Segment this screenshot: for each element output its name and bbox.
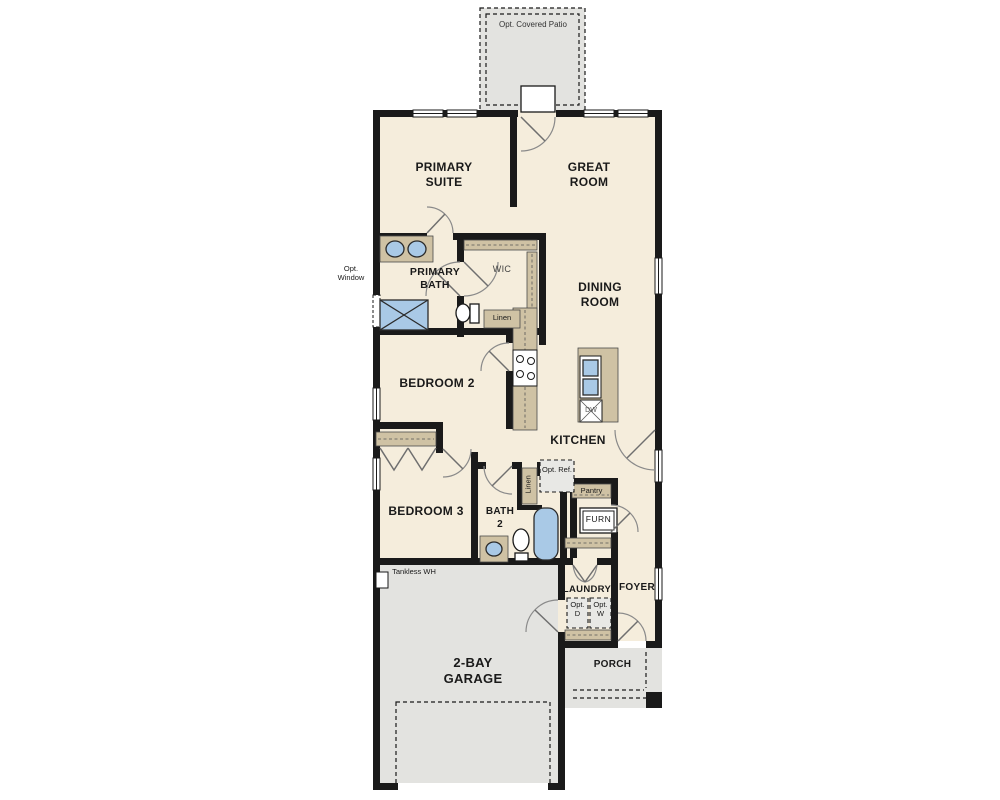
label-opt-window: Opt. Window [330, 265, 372, 282]
room-label-bedroom-3: BEDROOM 3 [381, 504, 471, 519]
wall-right [655, 110, 662, 648]
wall-left [373, 110, 380, 790]
wall-wic-dining [539, 233, 546, 345]
sink [408, 241, 426, 257]
toilet [456, 304, 470, 322]
window [618, 110, 648, 117]
garage-door-opening [398, 783, 548, 790]
wall-primary-great [510, 110, 517, 207]
room-label-laundry: LAUNDRY [560, 584, 614, 596]
room-label-bath-2: BATH 2 [482, 506, 518, 531]
room-label-foyer: FOYER [615, 582, 659, 595]
room-label-bedroom-2: BEDROOM 2 [392, 376, 482, 391]
window [655, 450, 662, 482]
label-linen-upper: Linen [484, 314, 520, 323]
wall-bedroom3-bath2 [471, 452, 478, 565]
room-label-patio: Opt. Covered Patio [487, 20, 579, 29]
bathtub [534, 508, 558, 560]
room-label-dining-room: DINING ROOM [565, 280, 635, 310]
window [373, 458, 380, 490]
window [447, 110, 477, 117]
label-opt-ref: Opt. Ref. [540, 466, 574, 475]
label-furnace: FURN [580, 515, 617, 525]
porch-column [646, 692, 662, 708]
room-label-garage: 2-BAY GARAGE [430, 655, 516, 688]
toilet-tank [470, 304, 479, 323]
room-label-great-room: GREAT ROOM [558, 160, 620, 190]
optional-window [373, 295, 380, 327]
label-opt-dryer: Opt. D [567, 601, 588, 618]
label-opt-washer: Opt. W [590, 601, 611, 618]
room-label-porch: PORCH [585, 659, 640, 672]
wall-garage-right [558, 632, 565, 790]
window [373, 388, 380, 420]
window [655, 258, 662, 294]
toilet [513, 529, 529, 551]
label-linen-lower: Linen [525, 469, 534, 499]
laundry-shelf [565, 630, 611, 640]
label-tankless-wh: Tankless WH [390, 568, 438, 577]
sink [386, 241, 404, 257]
wall-garage-top [373, 558, 565, 565]
label-dishwasher: DW [580, 407, 602, 415]
sink [486, 542, 502, 556]
room-label-primary-bath: PRIMARY BATH [400, 266, 470, 292]
window [413, 110, 443, 117]
range [513, 350, 537, 386]
room-label-primary-suite: PRIMARY SUITE [399, 160, 489, 190]
tankless-wh-box [376, 572, 388, 588]
window [584, 110, 614, 117]
coat-shelf [565, 538, 611, 548]
patio-step [521, 86, 555, 112]
wall-laundry-foyer [611, 558, 618, 641]
room-label-kitchen: KITCHEN [545, 433, 611, 448]
floor-plan: Opt. Covered Patio PRIMARY SUITE GREAT R… [0, 0, 1000, 800]
toilet-base [515, 553, 528, 561]
label-pantry: Pantry [572, 487, 611, 496]
room-label-wic: WIC [487, 264, 517, 275]
